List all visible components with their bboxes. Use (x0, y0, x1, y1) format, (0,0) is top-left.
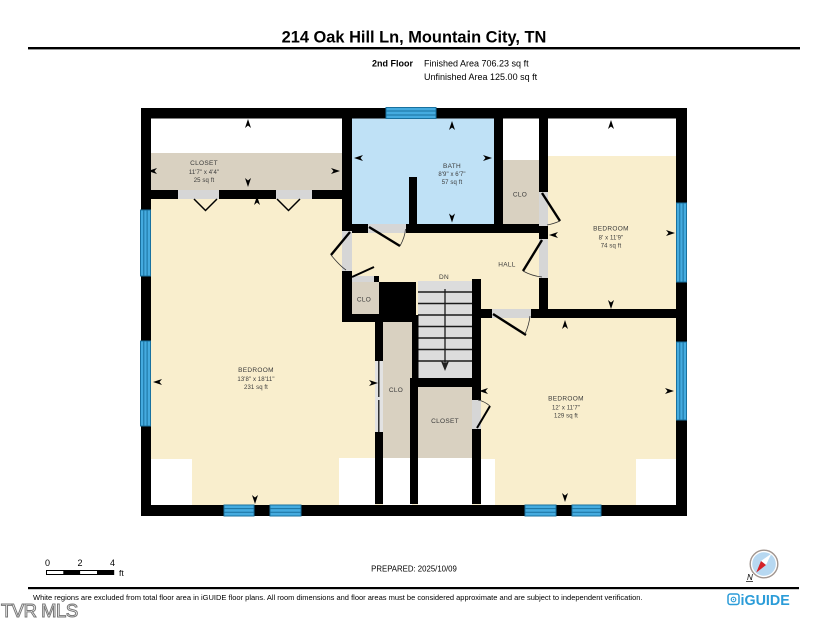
svg-text:ft: ft (119, 568, 124, 578)
svg-text:0: 0 (45, 558, 50, 568)
svg-text:2: 2 (77, 558, 82, 568)
svg-text:HALL: HALL (498, 262, 516, 269)
svg-text:BATH: BATH (443, 163, 461, 170)
svg-text:CLO: CLO (357, 297, 371, 304)
svg-text:57 sq ft: 57 sq ft (442, 180, 463, 186)
svg-text:DN: DN (439, 274, 449, 281)
svg-text:BEDROOM: BEDROOM (593, 226, 629, 233)
svg-text:White regions are excluded fro: White regions are excluded from total fl… (33, 593, 643, 602)
svg-text:BEDROOM: BEDROOM (238, 367, 274, 374)
svg-text:12' x 11'7": 12' x 11'7" (552, 406, 580, 412)
svg-text:4: 4 (110, 558, 115, 568)
svg-text:PREPARED: 2025/10/09: PREPARED: 2025/10/09 (371, 565, 457, 574)
svg-text:25 sq ft: 25 sq ft (194, 178, 215, 184)
svg-text:CLO: CLO (389, 387, 403, 394)
svg-text:Unfinished Area 125.00 sq ft: Unfinished Area 125.00 sq ft (424, 72, 538, 82)
svg-text:CLOSET: CLOSET (190, 160, 218, 167)
svg-text:N: N (747, 573, 753, 582)
svg-text:CLOSET: CLOSET (431, 418, 459, 425)
svg-text:TVR MLS: TVR MLS (1, 600, 78, 621)
svg-text:231 sq ft: 231 sq ft (244, 385, 268, 391)
svg-text:Finished Area 706.23 sq ft: Finished Area 706.23 sq ft (424, 59, 529, 69)
svg-text:8' x 11'9": 8' x 11'9" (599, 236, 624, 242)
svg-text:129 sq ft: 129 sq ft (554, 414, 578, 420)
svg-text:13'8" x 18'11": 13'8" x 18'11" (237, 377, 274, 383)
svg-text:8'9" x 6'7": 8'9" x 6'7" (438, 172, 465, 178)
svg-text:74 sq ft: 74 sq ft (601, 244, 622, 250)
svg-text:iGUIDE: iGUIDE (741, 593, 790, 609)
svg-text:214 Oak Hill Ln, Mountain City: 214 Oak Hill Ln, Mountain City, TN (282, 29, 547, 47)
svg-text:BEDROOM: BEDROOM (548, 396, 584, 403)
svg-text:11'7" x 4'4": 11'7" x 4'4" (189, 170, 219, 176)
svg-text:2nd Floor: 2nd Floor (372, 59, 413, 69)
svg-text:CLO: CLO (513, 192, 527, 199)
